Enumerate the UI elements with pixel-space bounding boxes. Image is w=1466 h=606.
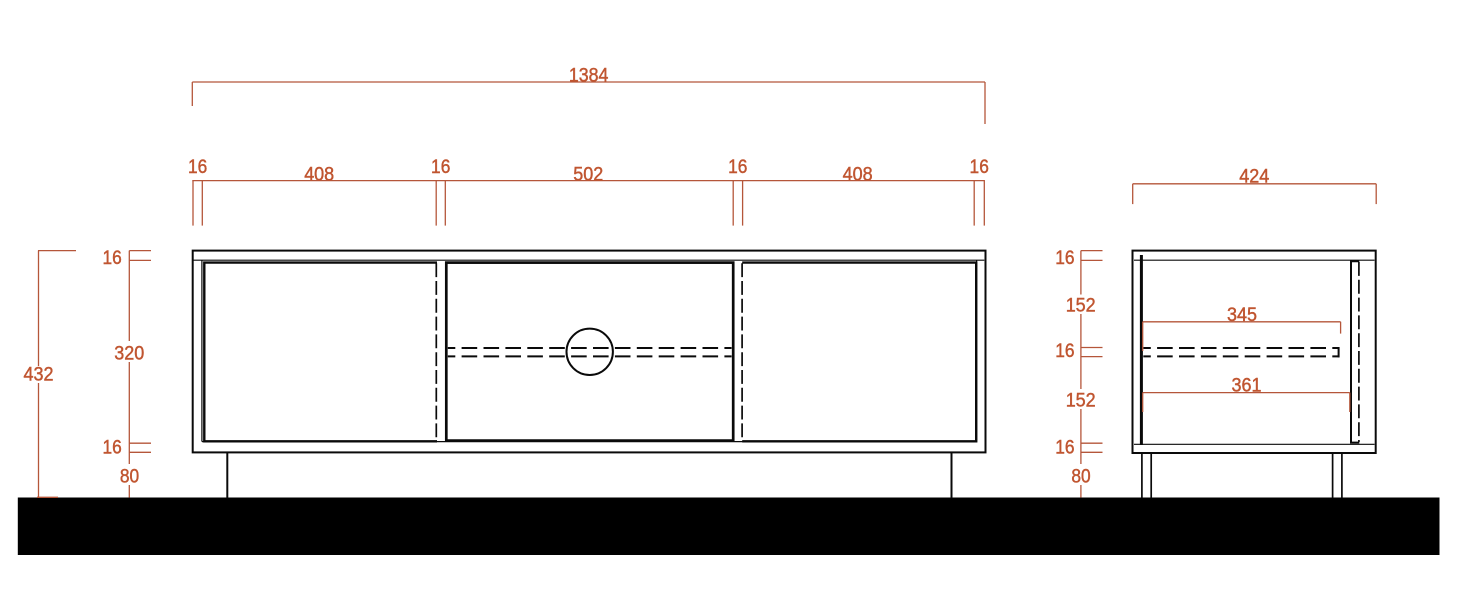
svg-text:16: 16 [431,156,450,178]
svg-text:320: 320 [114,342,144,364]
svg-text:424: 424 [1239,166,1269,188]
svg-text:502: 502 [573,163,603,185]
svg-text:16: 16 [1055,247,1074,269]
svg-text:152: 152 [1066,295,1096,317]
svg-text:16: 16 [970,156,989,178]
svg-text:361: 361 [1232,375,1262,397]
svg-text:16: 16 [188,156,207,178]
svg-text:408: 408 [304,163,334,185]
svg-text:432: 432 [24,364,54,386]
svg-text:152: 152 [1066,389,1096,411]
svg-text:16: 16 [1055,340,1074,362]
svg-text:345: 345 [1227,304,1257,326]
svg-text:80: 80 [1071,466,1090,488]
svg-text:16: 16 [103,247,122,269]
svg-text:16: 16 [103,437,122,459]
svg-text:16: 16 [728,156,747,178]
svg-text:1384: 1384 [569,65,609,87]
svg-text:408: 408 [843,163,873,185]
svg-text:16: 16 [1055,437,1074,459]
svg-text:80: 80 [120,466,139,488]
